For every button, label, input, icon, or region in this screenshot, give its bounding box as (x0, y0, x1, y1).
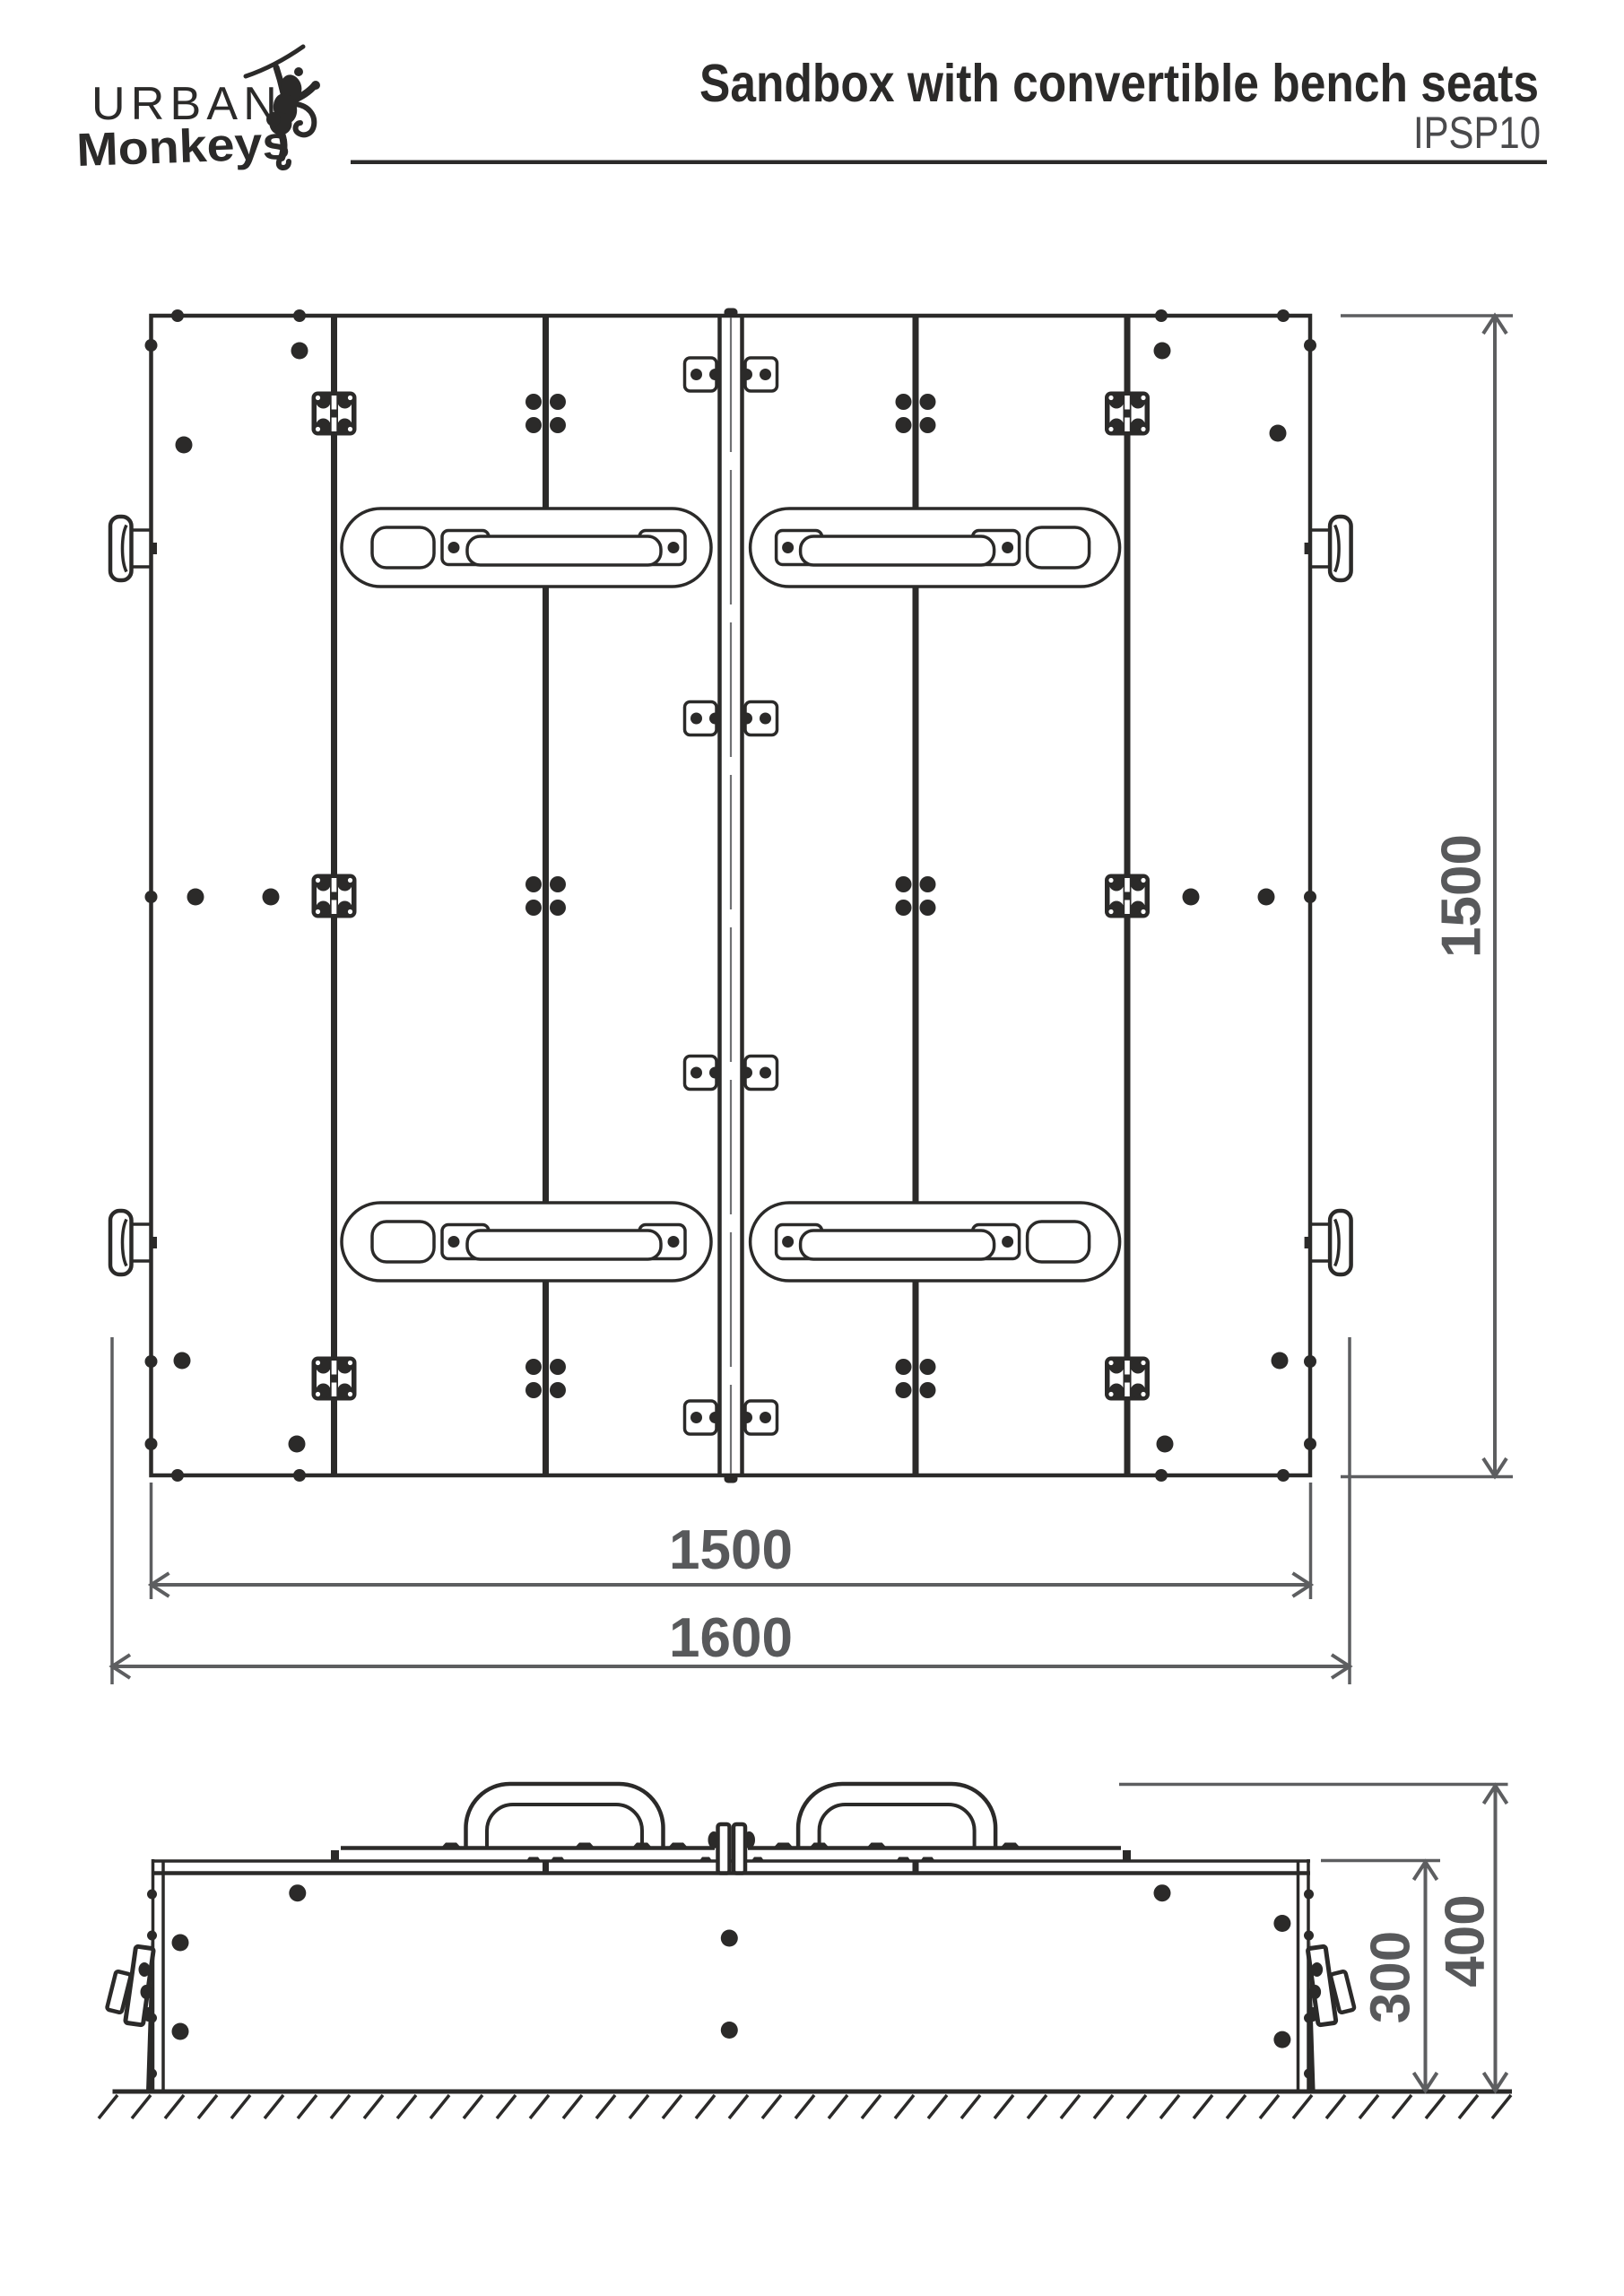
svg-text:1600: 1600 (669, 1607, 793, 1669)
svg-text:1500: 1500 (1431, 834, 1493, 958)
svg-text:IPSP10: IPSP10 (1413, 108, 1541, 158)
svg-text:400: 400 (1435, 1894, 1497, 1987)
svg-text:Sandbox with convertible bench: Sandbox with convertible bench seats (699, 54, 1539, 113)
svg-text:300: 300 (1360, 1931, 1422, 2023)
svg-text:1500: 1500 (669, 1519, 793, 1581)
svg-text:Monkeys: Monkeys (75, 117, 291, 177)
